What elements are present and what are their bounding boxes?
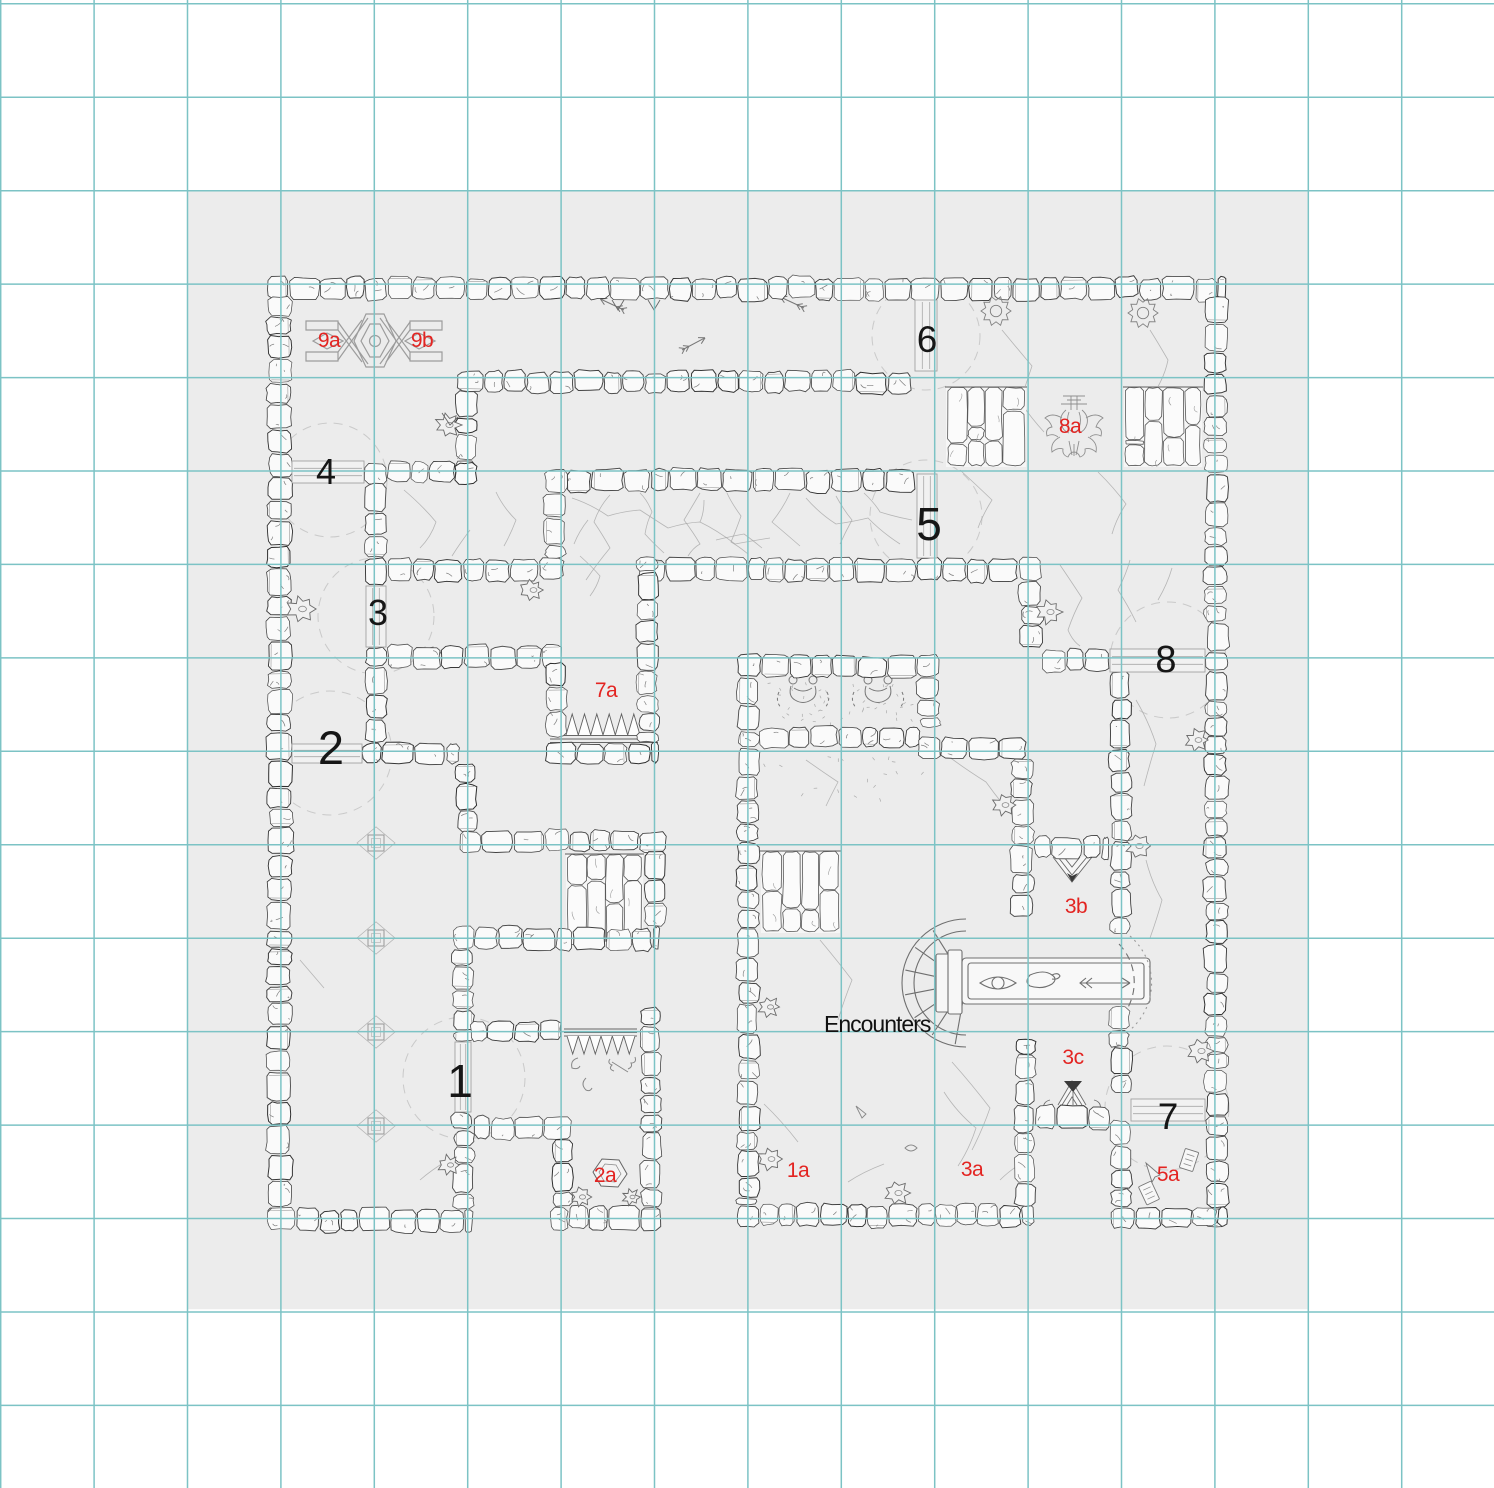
svg-text:9a: 9a <box>318 329 341 352</box>
svg-text:7: 7 <box>1158 1096 1179 1137</box>
svg-text:9b: 9b <box>411 329 433 352</box>
svg-text:Encounters: Encounters <box>824 1011 931 1037</box>
svg-text:4: 4 <box>316 451 336 492</box>
svg-text:3a: 3a <box>961 1158 984 1181</box>
svg-text:5: 5 <box>916 498 942 550</box>
svg-text:8a: 8a <box>1059 415 1082 438</box>
svg-text:1: 1 <box>447 1055 473 1107</box>
svg-text:5a: 5a <box>1157 1163 1180 1186</box>
svg-text:6: 6 <box>917 319 938 360</box>
svg-text:7a: 7a <box>595 679 618 702</box>
svg-text:2a: 2a <box>594 1164 617 1187</box>
svg-text:2: 2 <box>318 721 344 774</box>
svg-text:3: 3 <box>368 592 388 633</box>
svg-text:3c: 3c <box>1062 1046 1083 1069</box>
svg-text:1a: 1a <box>787 1159 810 1182</box>
svg-text:8: 8 <box>1155 639 1176 681</box>
svg-text:3b: 3b <box>1065 895 1087 918</box>
